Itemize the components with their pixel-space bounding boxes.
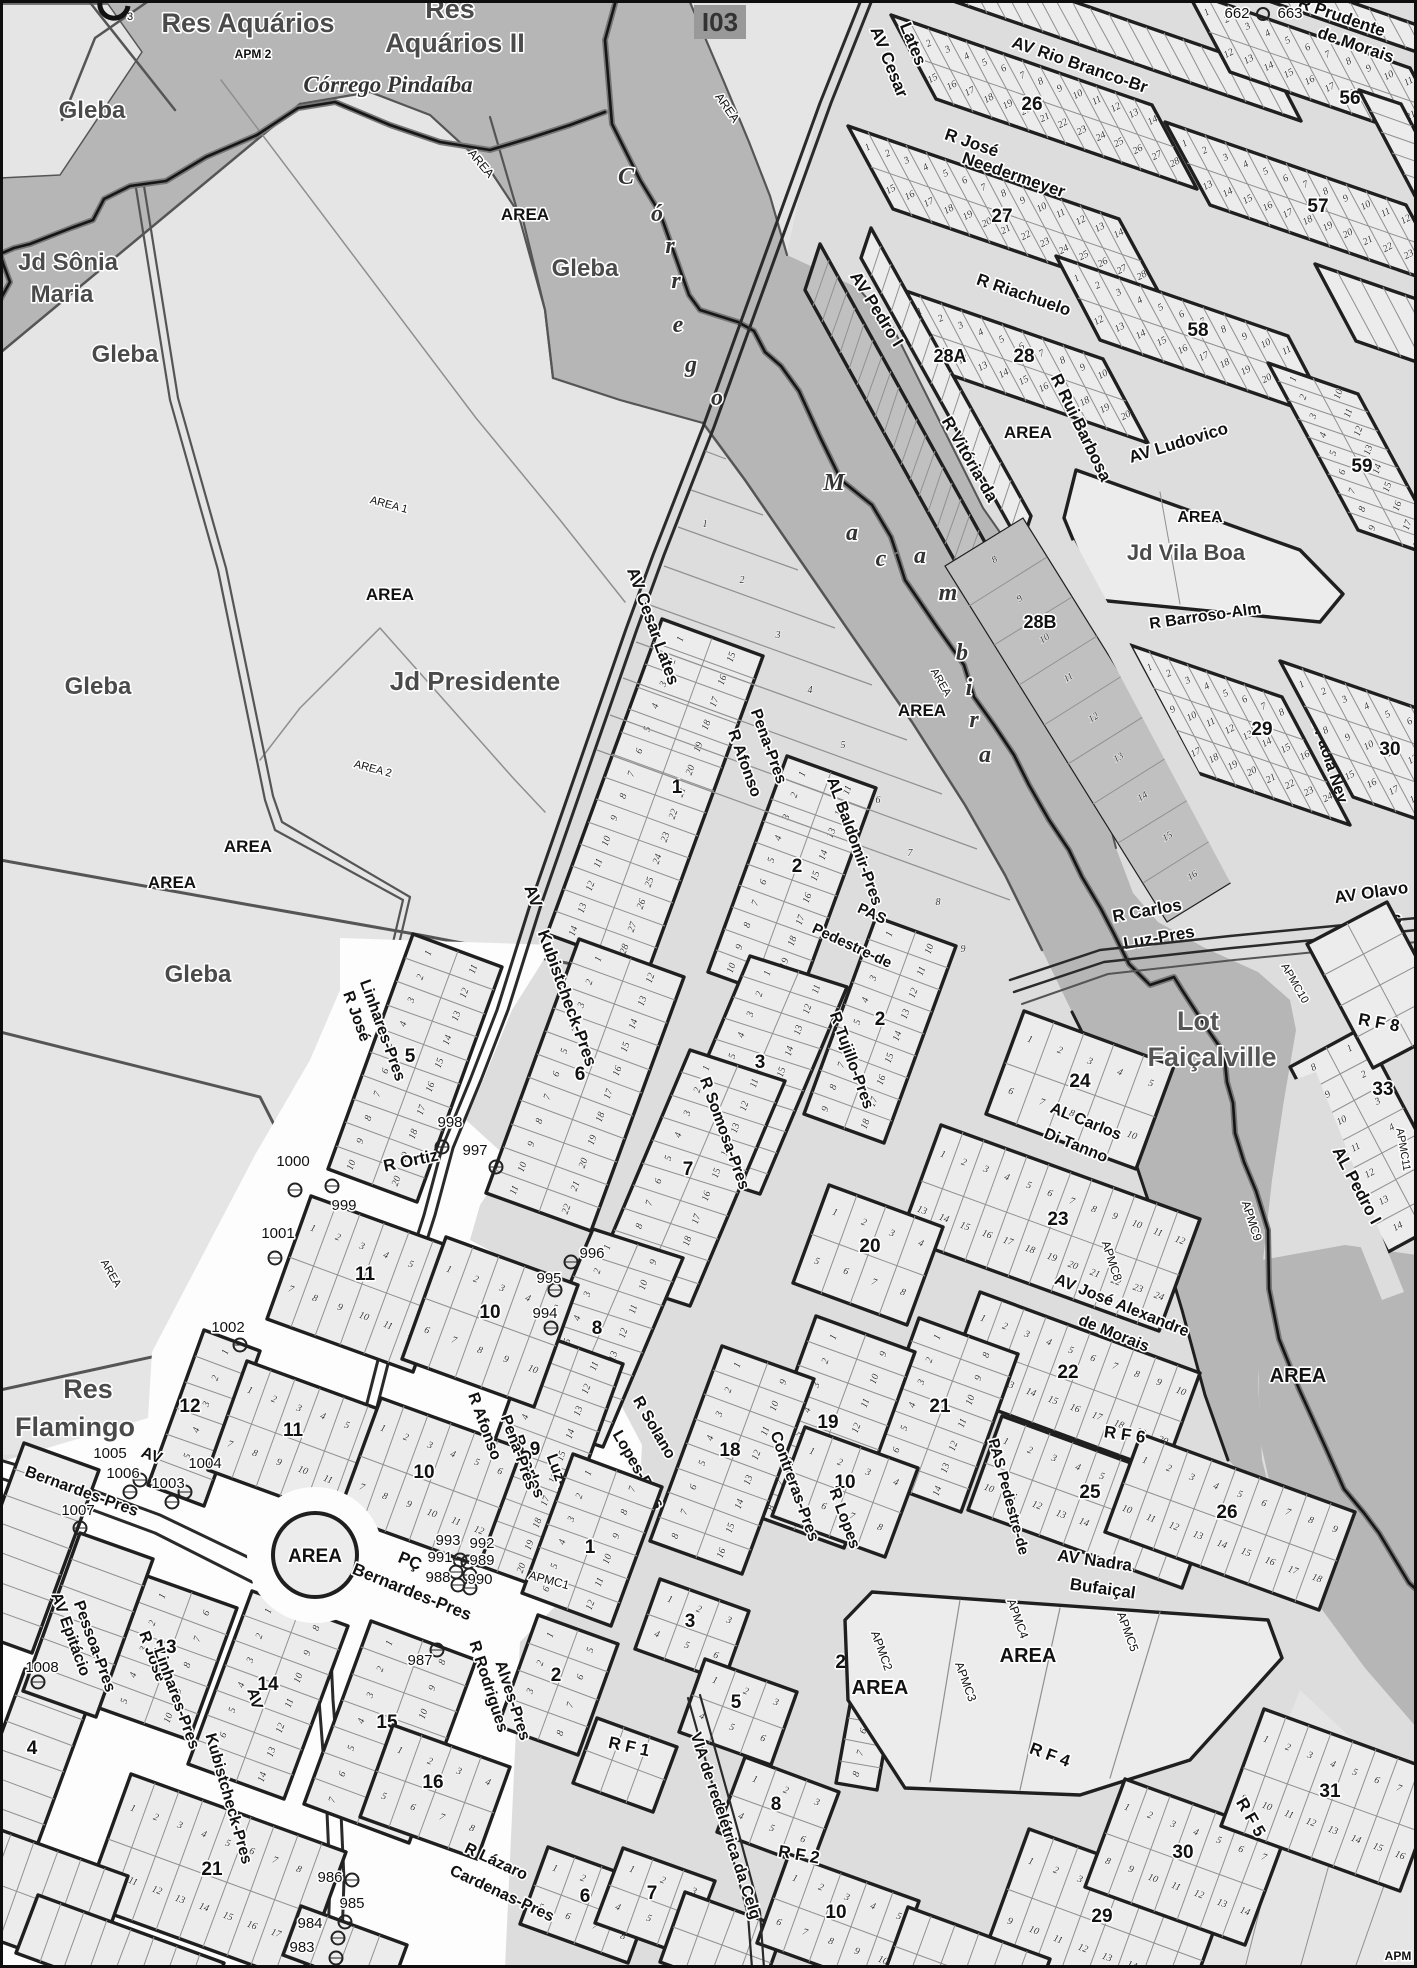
- svg-text:26: 26: [1216, 1502, 1237, 1523]
- svg-text:24: 24: [1069, 1071, 1091, 1092]
- svg-text:11: 11: [355, 1264, 376, 1285]
- svg-text:8: 8: [592, 1318, 603, 1339]
- svg-text:a: a: [914, 543, 926, 569]
- svg-text:3: 3: [775, 630, 781, 641]
- svg-text:Gleba: Gleba: [552, 255, 619, 282]
- svg-text:Jd Vila Boa: Jd Vila Boa: [1127, 540, 1246, 565]
- svg-text:28: 28: [1013, 346, 1034, 367]
- svg-text:1006: 1006: [106, 1465, 139, 1482]
- svg-text:992: 992: [469, 1535, 494, 1552]
- svg-text:7: 7: [683, 1159, 694, 1180]
- svg-text:m: m: [939, 580, 958, 606]
- svg-text:999: 999: [331, 1197, 356, 1214]
- svg-text:AREA: AREA: [224, 837, 272, 856]
- svg-text:994: 994: [532, 1305, 557, 1322]
- svg-text:b: b: [956, 640, 968, 666]
- svg-text:AREA: AREA: [898, 701, 946, 720]
- svg-text:c: c: [876, 546, 887, 572]
- svg-text:18: 18: [719, 1440, 740, 1461]
- svg-text:58: 58: [1187, 320, 1208, 341]
- svg-text:g: g: [684, 352, 697, 378]
- svg-text:8: 8: [936, 897, 941, 908]
- svg-text:a: a: [846, 520, 858, 546]
- svg-text:ó: ó: [651, 201, 663, 227]
- svg-text:9: 9: [961, 944, 966, 955]
- svg-text:987: 987: [407, 1652, 432, 1669]
- svg-text:1000: 1000: [276, 1153, 309, 1170]
- svg-text:986: 986: [317, 1869, 342, 1886]
- svg-text:11: 11: [283, 1420, 304, 1441]
- svg-text:4: 4: [808, 685, 813, 696]
- svg-text:APM 2: APM 2: [235, 47, 272, 61]
- svg-text:Jd Presidente: Jd Presidente: [390, 666, 561, 696]
- svg-text:1002: 1002: [211, 1319, 244, 1336]
- svg-text:983: 983: [289, 1939, 314, 1956]
- svg-text:AREA: AREA: [148, 873, 196, 892]
- svg-text:7: 7: [647, 1883, 658, 1904]
- svg-text:21: 21: [929, 1396, 951, 1417]
- svg-text:28B: 28B: [1023, 612, 1056, 632]
- svg-text:997: 997: [462, 1142, 487, 1159]
- svg-text:30: 30: [1379, 739, 1400, 760]
- svg-text:990: 990: [467, 1571, 492, 1588]
- svg-text:i: i: [966, 675, 973, 701]
- svg-text:1001: 1001: [261, 1225, 294, 1242]
- svg-text:991: 991: [427, 1549, 452, 1566]
- svg-text:3: 3: [685, 1611, 696, 1632]
- svg-text:Flamingo: Flamingo: [15, 1412, 135, 1442]
- svg-text:AREA: AREA: [1000, 1645, 1057, 1667]
- svg-text:I03: I03: [702, 7, 738, 37]
- svg-text:31: 31: [1319, 1781, 1341, 1802]
- svg-text:e: e: [673, 312, 684, 338]
- svg-text:1: 1: [703, 519, 708, 530]
- svg-text:10: 10: [825, 1902, 846, 1923]
- svg-text:Faiçalville: Faiçalville: [1147, 1042, 1276, 1072]
- svg-text:23: 23: [1047, 1209, 1068, 1230]
- svg-text:Res Aquários: Res Aquários: [161, 8, 334, 38]
- svg-text:20: 20: [859, 1236, 880, 1257]
- svg-text:C: C: [618, 164, 635, 190]
- svg-text:25: 25: [1079, 1482, 1101, 1503]
- svg-text:Córrego Pindaíba: Córrego Pindaíba: [303, 72, 472, 97]
- svg-text:Res: Res: [425, 0, 475, 24]
- svg-text:1005: 1005: [93, 1445, 126, 1462]
- svg-text:Lot: Lot: [1177, 1006, 1219, 1036]
- svg-text:5: 5: [731, 1692, 742, 1713]
- svg-text:16: 16: [422, 1772, 443, 1793]
- svg-text:6: 6: [876, 795, 881, 806]
- svg-text:Gleba: Gleba: [65, 673, 132, 700]
- svg-text:AREA: AREA: [501, 205, 549, 224]
- svg-text:Maria: Maria: [31, 281, 94, 308]
- svg-text:Gleba: Gleba: [59, 97, 126, 124]
- svg-text:989: 989: [469, 1552, 494, 1569]
- svg-text:5: 5: [841, 740, 846, 751]
- svg-text:988: 988: [425, 1569, 450, 1586]
- svg-text:59: 59: [1351, 456, 1372, 477]
- svg-text:5: 5: [405, 1046, 416, 1067]
- svg-text:r: r: [969, 707, 979, 733]
- svg-text:985: 985: [339, 1895, 364, 1912]
- svg-text:AREA: AREA: [1177, 509, 1223, 526]
- svg-text:22: 22: [1057, 1362, 1078, 1383]
- svg-text:2: 2: [875, 1009, 886, 1030]
- svg-text:29: 29: [1091, 1906, 1112, 1927]
- svg-text:1003: 1003: [151, 1475, 184, 1492]
- svg-text:10: 10: [413, 1462, 434, 1483]
- svg-text:a: a: [979, 742, 991, 768]
- svg-text:30: 30: [1172, 1842, 1193, 1863]
- svg-text:995: 995: [536, 1270, 561, 1287]
- svg-text:Gleba: Gleba: [92, 341, 159, 368]
- svg-text:r: r: [665, 233, 675, 259]
- svg-text:AREA: AREA: [1004, 423, 1052, 442]
- svg-text:984: 984: [297, 1915, 322, 1932]
- svg-text:o: o: [711, 385, 723, 411]
- svg-text:8: 8: [771, 1794, 782, 1815]
- svg-text:Gleba: Gleba: [165, 961, 232, 988]
- svg-text:12: 12: [179, 1396, 200, 1417]
- svg-text:1004: 1004: [188, 1455, 221, 1472]
- svg-text:1007: 1007: [61, 1502, 94, 1519]
- svg-text:27: 27: [991, 206, 1012, 227]
- svg-text:AREA: AREA: [1270, 1365, 1327, 1387]
- svg-text:993: 993: [435, 1532, 460, 1549]
- svg-text:19: 19: [817, 1412, 838, 1433]
- svg-text:1: 1: [585, 1537, 596, 1558]
- svg-text:10: 10: [479, 1302, 500, 1323]
- svg-text:663: 663: [1277, 5, 1302, 22]
- svg-text:AREA: AREA: [288, 1546, 342, 1567]
- svg-text:6: 6: [580, 1886, 591, 1907]
- svg-text:Res: Res: [63, 1374, 113, 1404]
- svg-text:28A: 28A: [933, 346, 966, 366]
- svg-text:AREA: AREA: [852, 1677, 909, 1699]
- svg-text:26: 26: [1021, 94, 1042, 115]
- svg-text:APM: APM: [1385, 1949, 1412, 1963]
- svg-text:1008: 1008: [25, 1659, 58, 1676]
- svg-text:2: 2: [792, 856, 803, 877]
- svg-text:56: 56: [1339, 88, 1360, 109]
- svg-text:29: 29: [1251, 719, 1272, 740]
- svg-text:r: r: [671, 268, 681, 294]
- svg-text:998: 998: [437, 1114, 462, 1131]
- svg-text:Jd Sônia: Jd Sônia: [18, 249, 119, 276]
- svg-text:57: 57: [1307, 196, 1328, 217]
- svg-text:662: 662: [1224, 5, 1249, 22]
- svg-text:2: 2: [551, 1665, 562, 1686]
- svg-text:2: 2: [740, 575, 745, 586]
- svg-text:Aquários II: Aquários II: [385, 28, 525, 58]
- svg-text:AREA: AREA: [366, 585, 414, 604]
- svg-text:996: 996: [579, 1245, 604, 1262]
- svg-text:33: 33: [1372, 1079, 1393, 1100]
- svg-text:M: M: [822, 470, 846, 496]
- svg-text:4: 4: [27, 1738, 38, 1759]
- svg-text:21: 21: [201, 1859, 223, 1880]
